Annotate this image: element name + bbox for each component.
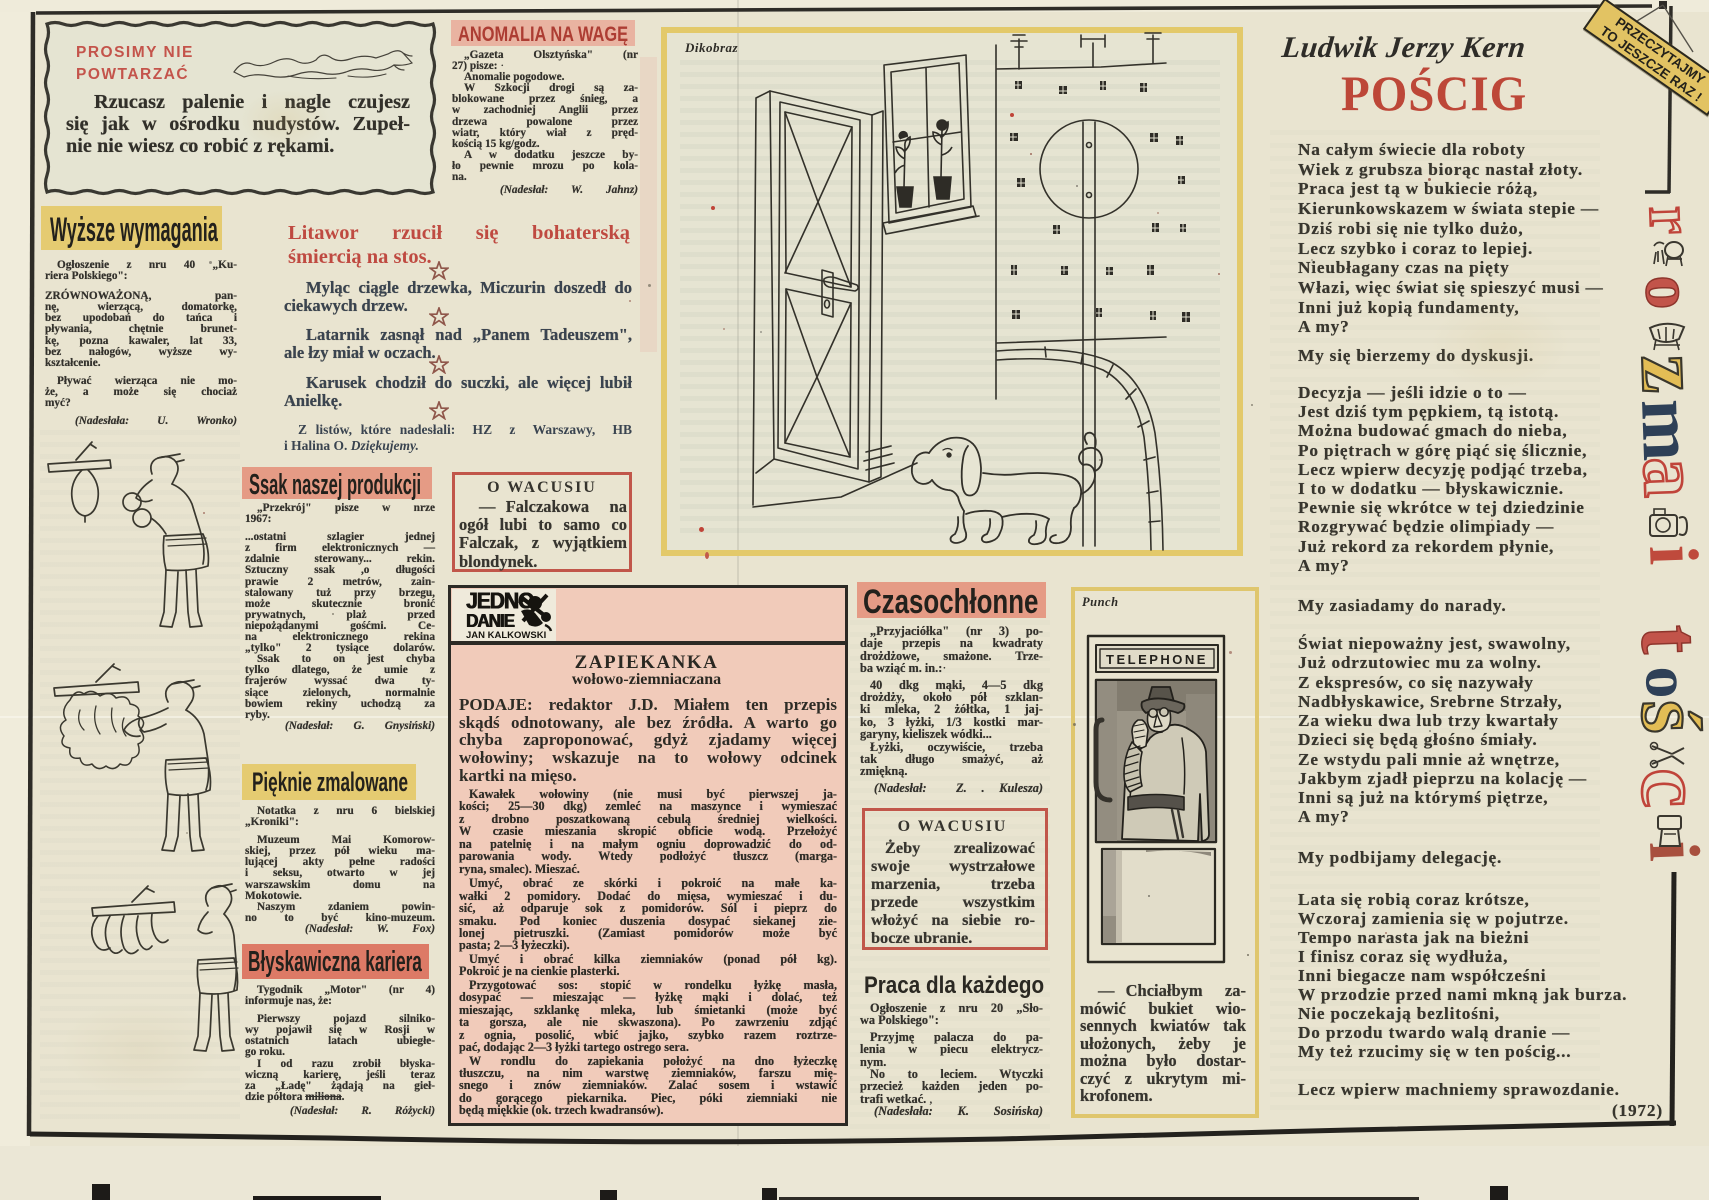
svg-text:i: i [1634,544,1709,566]
svg-text:r: r [1636,205,1705,235]
svg-text:a: a [1626,456,1709,499]
svg-text:i: i [1634,840,1709,863]
svg-text:m: m [1625,398,1709,462]
svg-text:z: z [1623,353,1709,394]
svg-text:o: o [1632,665,1704,699]
svg-text:TELEPHONE: TELEPHONE [1106,652,1208,667]
svg-text:c: c [1622,766,1709,808]
svg-text:ś: ś [1623,698,1709,734]
svg-text:o: o [1631,274,1708,311]
svg-text:t: t [1623,623,1709,655]
